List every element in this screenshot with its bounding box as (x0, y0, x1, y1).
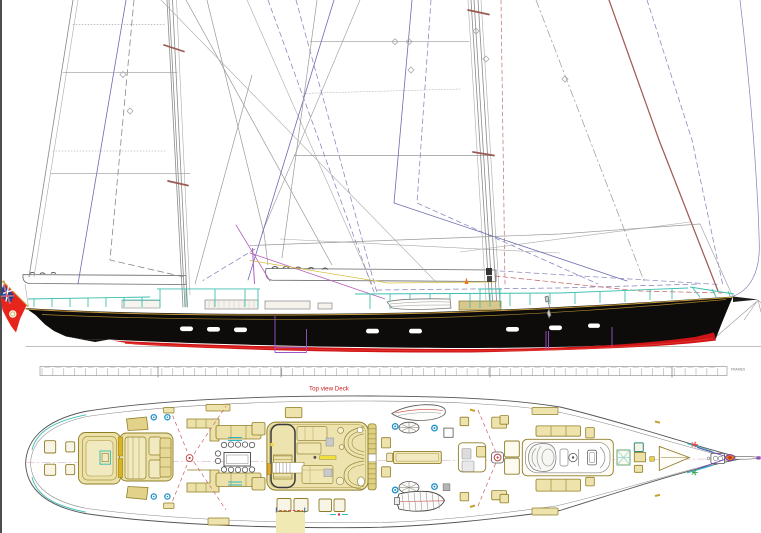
svg-text:Top view Deck: Top view Deck (309, 386, 350, 393)
svg-text:FRAMES: FRAMES (731, 368, 746, 372)
